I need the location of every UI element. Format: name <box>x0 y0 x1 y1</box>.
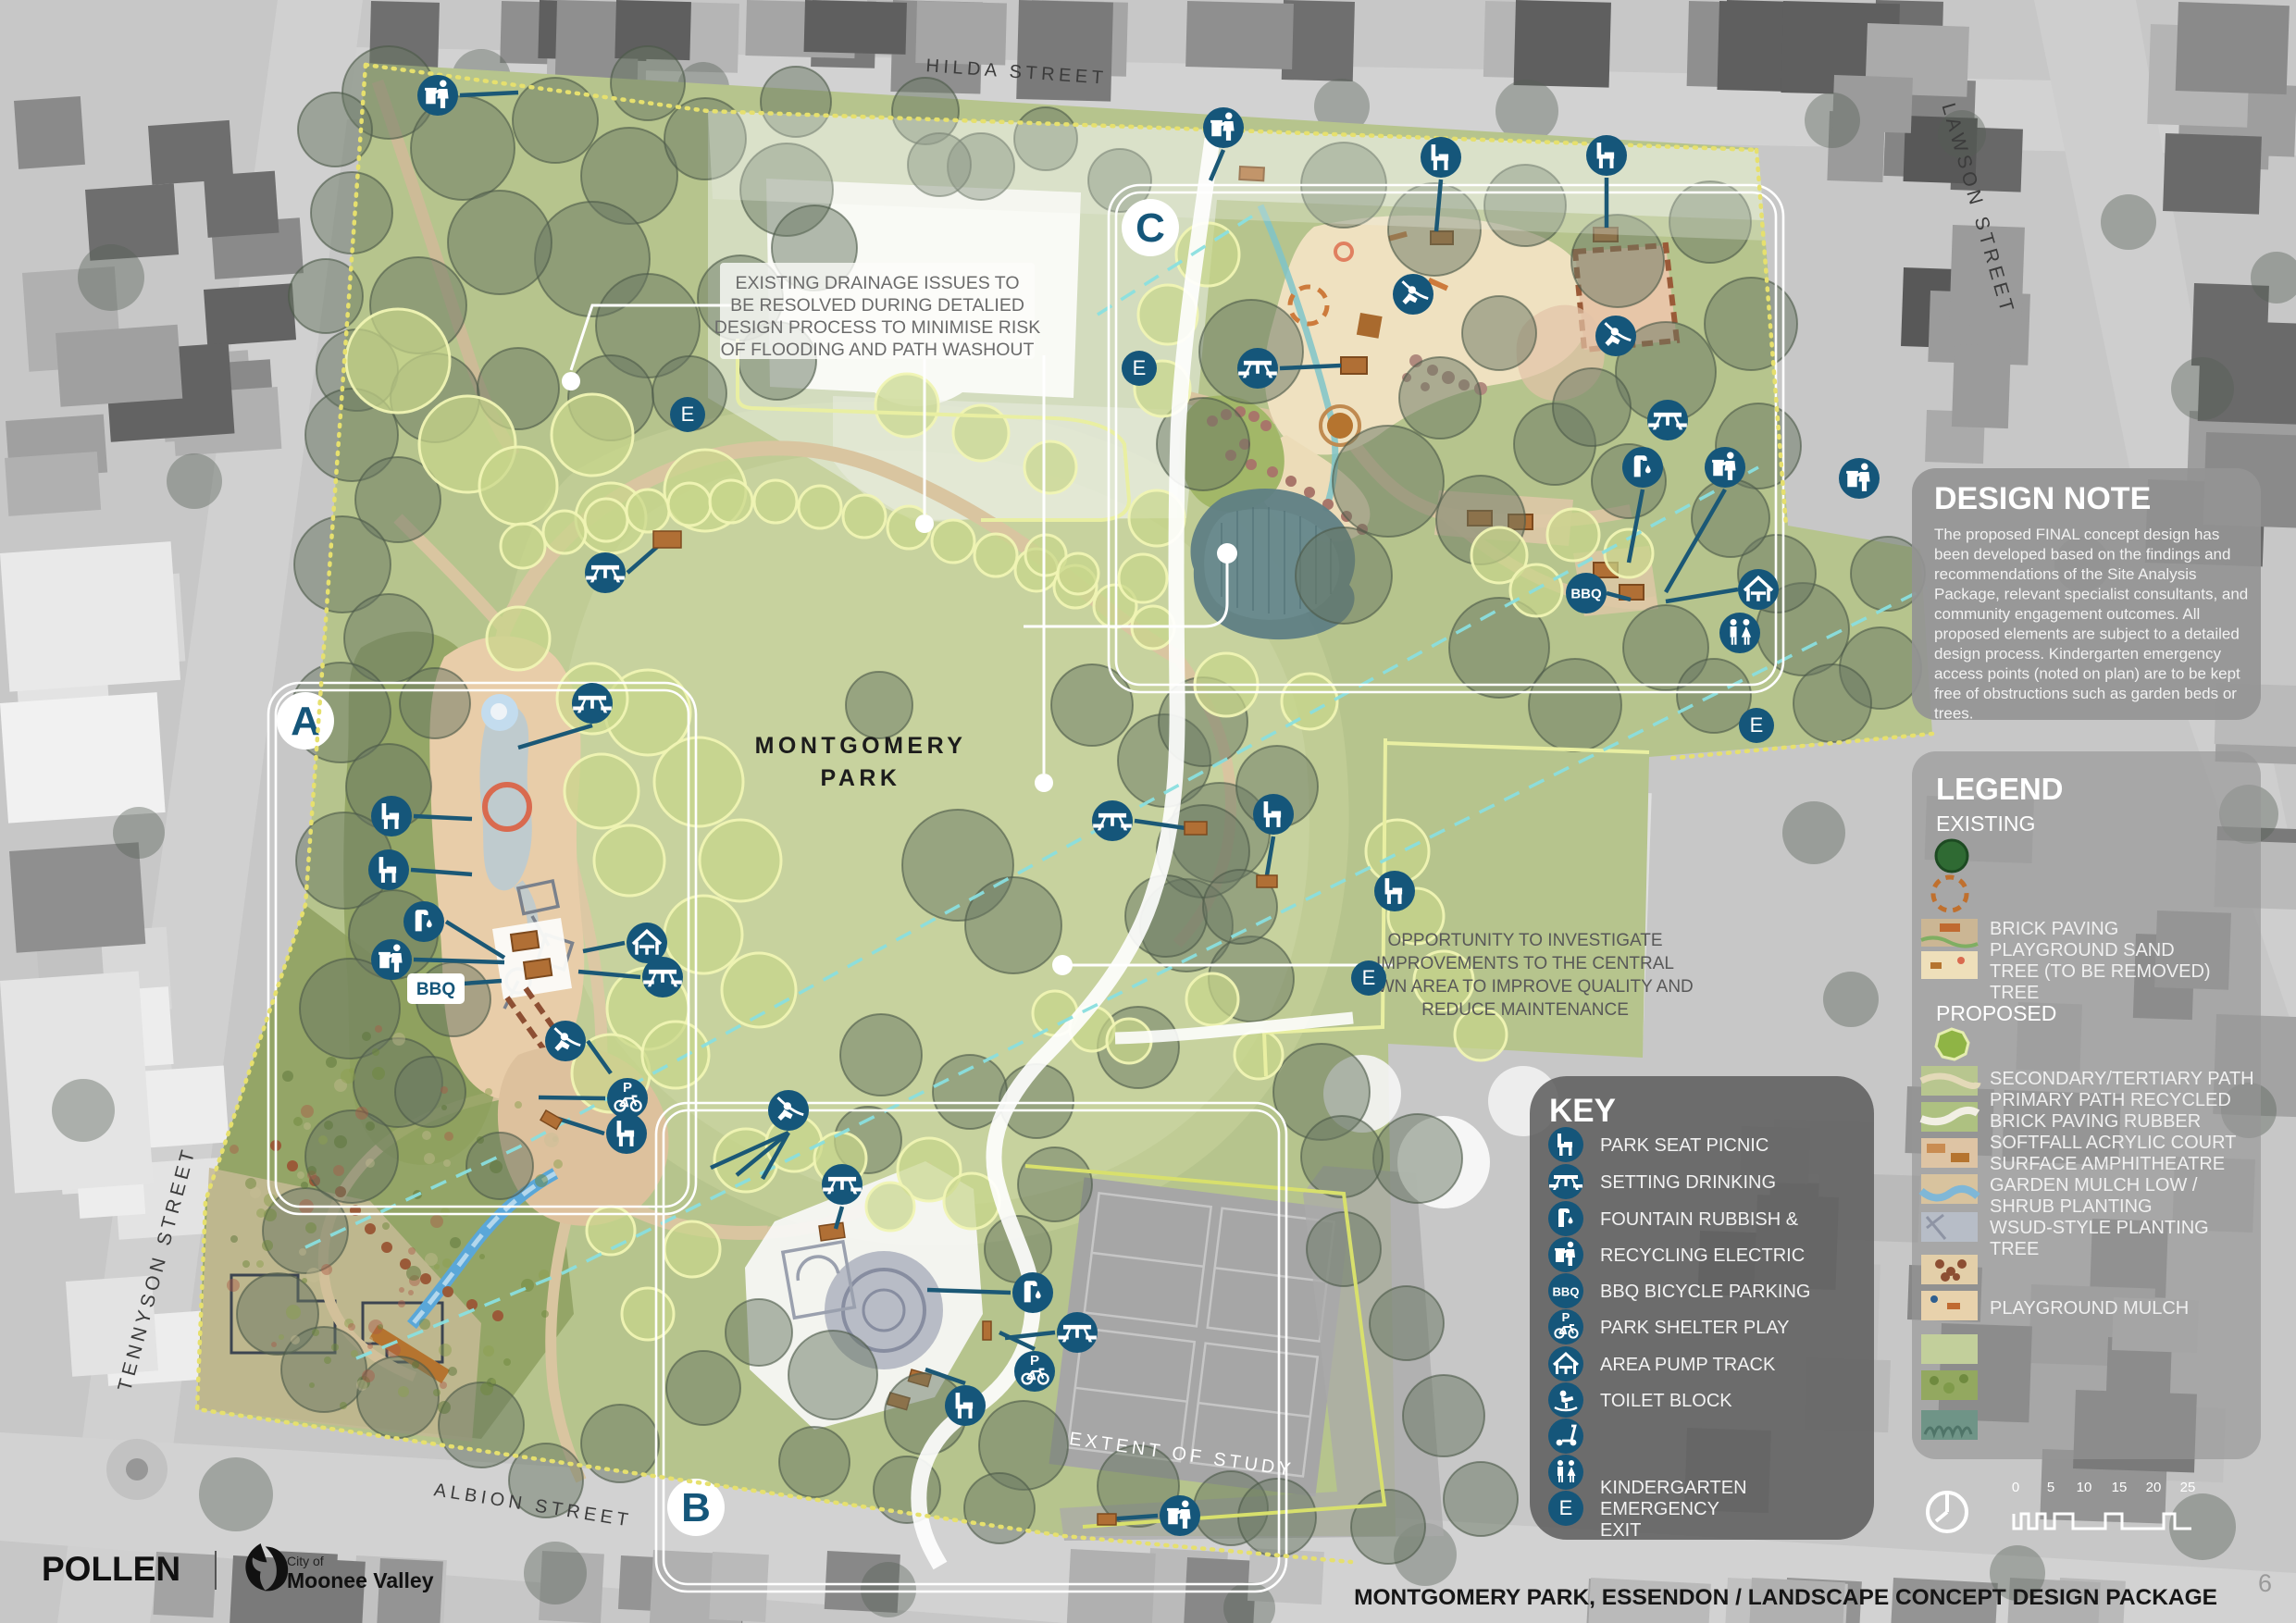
svg-text:E: E <box>1559 1496 1573 1519</box>
svg-text:BBQ: BBQ <box>1570 587 1602 602</box>
svg-text:GARDEN MULCH LOW /: GARDEN MULCH LOW / <box>1990 1175 2198 1196</box>
svg-text:EXIT: EXIT <box>1600 1520 1641 1541</box>
svg-text:design process. Kindergarten e: design process. Kindergarten emergency <box>1934 645 2221 663</box>
svg-text:C: C <box>1136 205 1165 251</box>
svg-text:MONTGOMERY: MONTGOMERY <box>755 733 967 759</box>
svg-text:PARK SHELTER PLAY: PARK SHELTER PLAY <box>1600 1318 1790 1338</box>
svg-text:City of: City of <box>287 1554 324 1568</box>
svg-text:access points (noted on plan): access points (noted on plan) are to be … <box>1934 665 2240 683</box>
svg-text:proposed elements are subject: proposed elements are subject to a detai… <box>1934 626 2240 643</box>
svg-text:SECONDARY/TERTIARY PATH: SECONDARY/TERTIARY PATH <box>1990 1069 2254 1089</box>
svg-text:5: 5 <box>2047 1480 2054 1495</box>
svg-text:BRICK PAVING: BRICK PAVING <box>1990 919 2118 939</box>
svg-text:DESIGN NOTE: DESIGN NOTE <box>1934 481 2151 516</box>
svg-text:TOILET BLOCK: TOILET BLOCK <box>1600 1391 1732 1411</box>
svg-text:WSUD-STYLE PLANTING: WSUD-STYLE PLANTING <box>1990 1218 2209 1238</box>
svg-text:B: B <box>681 1485 711 1530</box>
svg-text:E: E <box>681 403 695 426</box>
svg-text:BBQ BICYCLE PARKING: BBQ BICYCLE PARKING <box>1600 1282 1810 1302</box>
svg-text:trees.: trees. <box>1934 705 1974 723</box>
svg-text:FOUNTAIN RUBBISH &: FOUNTAIN RUBBISH & <box>1600 1209 1799 1230</box>
svg-text:LAWN AREA TO IMPROVE QUALITY A: LAWN AREA TO IMPROVE QUALITY AND <box>1357 977 1694 997</box>
svg-text:SHRUB PLANTING: SHRUB PLANTING <box>1990 1196 2153 1217</box>
svg-text:E: E <box>1133 356 1147 379</box>
svg-text:PARK SEAT PICNIC: PARK SEAT PICNIC <box>1600 1135 1769 1156</box>
svg-text:PRIMARY PATH RECYCLED: PRIMARY PATH RECYCLED <box>1990 1090 2231 1110</box>
svg-text:10: 10 <box>2077 1480 2092 1495</box>
svg-text:LEGEND: LEGEND <box>1936 772 2064 806</box>
svg-text:POLLEN: POLLEN <box>42 1550 180 1588</box>
svg-text:TREE: TREE <box>1990 983 2039 1003</box>
svg-text:free of obstructions such as g: free of obstructions such as garden beds… <box>1934 685 2237 702</box>
svg-text:0: 0 <box>2012 1480 2019 1495</box>
svg-text:20: 20 <box>2146 1480 2162 1495</box>
svg-text:BRICK PAVING RUBBER: BRICK PAVING RUBBER <box>1990 1111 2201 1132</box>
svg-text:E: E <box>1750 713 1764 737</box>
svg-text:KINDERGARTEN: KINDERGARTEN <box>1600 1478 1747 1498</box>
svg-text:MONTGOMERY PARK, ESSENDON / LA: MONTGOMERY PARK, ESSENDON / LANDSCAPE CO… <box>1354 1585 2217 1610</box>
svg-text:OF FLOODING AND PATH WASHOUT: OF FLOODING AND PATH WASHOUT <box>721 340 1035 360</box>
svg-text:EXISTING DRAINAGE ISSUES TO: EXISTING DRAINAGE ISSUES TO <box>735 273 1019 293</box>
svg-text:BBQ: BBQ <box>1553 1285 1580 1299</box>
svg-text:been developed based on the fi: been developed based on the findings and <box>1934 546 2230 564</box>
svg-text:SURFACE AMPHITHEATRE: SURFACE AMPHITHEATRE <box>1990 1154 2225 1174</box>
svg-text:BE RESOLVED DURING DETALIED: BE RESOLVED DURING DETALIED <box>730 295 1024 316</box>
svg-text:SETTING DRINKING: SETTING DRINKING <box>1600 1172 1776 1193</box>
svg-text:RECYCLING ELECTRIC: RECYCLING ELECTRIC <box>1600 1245 1805 1266</box>
svg-text:PARK: PARK <box>821 765 901 791</box>
svg-text:EMERGENCY: EMERGENCY <box>1600 1499 1719 1519</box>
svg-text:TREE (TO BE REMOVED): TREE (TO BE REMOVED) <box>1990 961 2211 982</box>
svg-text:15: 15 <box>2112 1480 2128 1495</box>
svg-text:recommendations of the Site An: recommendations of the Site Analysis <box>1934 565 2196 583</box>
svg-text:AREA PUMP TRACK: AREA PUMP TRACK <box>1600 1355 1776 1375</box>
svg-text:Moonee Valley: Moonee Valley <box>287 1568 434 1592</box>
svg-text:TREE: TREE <box>1990 1239 2039 1259</box>
svg-text:PLAYGROUND MULCH: PLAYGROUND MULCH <box>1990 1298 2189 1319</box>
svg-text:Package, relevant specialist c: Package, relevant specialist consultants… <box>1934 586 2248 603</box>
svg-text:KEY: KEY <box>1549 1093 1616 1129</box>
svg-text:DESIGN PROCESS TO MINIMISE RIS: DESIGN PROCESS TO MINIMISE RISK <box>714 317 1041 338</box>
svg-text:REDUCE MAINTENANCE: REDUCE MAINTENANCE <box>1421 1000 1629 1020</box>
svg-text:SOFTFALL ACRYLIC COURT: SOFTFALL ACRYLIC COURT <box>1990 1133 2236 1153</box>
svg-text:6: 6 <box>2258 1569 2272 1597</box>
svg-text:community engagement outcomes.: community engagement outcomes. All <box>1934 605 2200 623</box>
svg-text:EXISTING: EXISTING <box>1936 811 2035 836</box>
svg-text:PLAYGROUND SAND: PLAYGROUND SAND <box>1990 940 2175 960</box>
svg-text:A: A <box>291 699 320 744</box>
svg-text:PROPOSED: PROPOSED <box>1936 1001 2056 1025</box>
svg-text:OPPORTUNITY TO INVESTIGATE: OPPORTUNITY TO INVESTIGATE <box>1387 931 1662 950</box>
svg-text:25: 25 <box>2180 1480 2196 1495</box>
svg-text:The proposed FINAL concept des: The proposed FINAL concept design has <box>1934 526 2219 543</box>
svg-text:IMPROVEMENTS TO THE CENTRAL: IMPROVEMENTS TO THE CENTRAL <box>1376 954 1674 973</box>
svg-text:E: E <box>1362 966 1376 989</box>
svg-text:BBQ: BBQ <box>416 980 455 999</box>
